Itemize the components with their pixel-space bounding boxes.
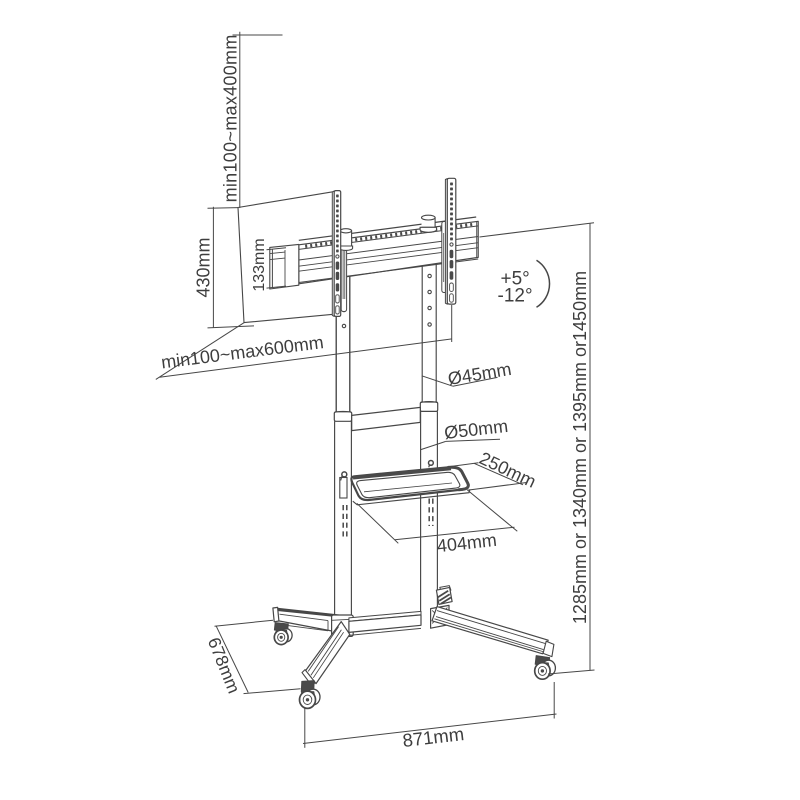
svg-text:-12°: -12°	[498, 286, 533, 307]
svg-text:404mm: 404mm	[436, 530, 498, 556]
svg-text:min100~max400mm: min100~max400mm	[221, 34, 241, 202]
svg-text:430mm: 430mm	[194, 237, 214, 297]
svg-text:1285mm or 1340mm or 1395mm or1: 1285mm or 1340mm or 1395mm or1450mm	[570, 271, 590, 624]
svg-text:133mm: 133mm	[251, 238, 268, 291]
svg-text:678mm: 678mm	[204, 635, 244, 697]
svg-text:871mm: 871mm	[401, 723, 465, 751]
svg-text:Ø45mm: Ø45mm	[446, 359, 512, 389]
